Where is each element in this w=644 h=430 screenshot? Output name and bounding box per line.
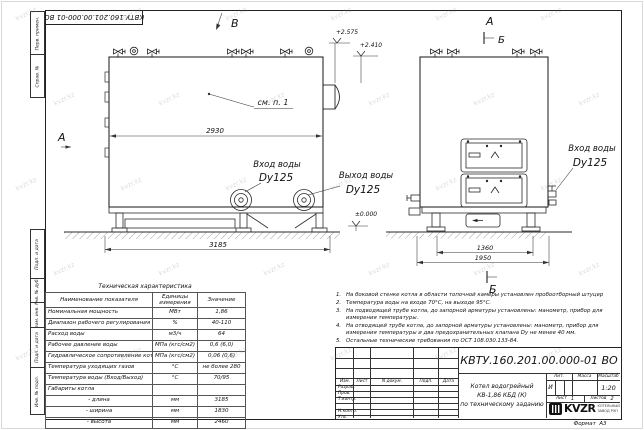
margin-cell: Инв. № дубл. <box>30 278 45 303</box>
margin-label: Подп. и дата <box>35 332 40 363</box>
note-number: 3. <box>336 308 341 315</box>
param-value: не более 280 <box>198 363 246 374</box>
lit-value: И <box>546 380 555 395</box>
rev-col-docnum: N докум. <box>371 380 413 384</box>
param-name: Температура уходящих газов <box>46 363 153 374</box>
param-unit: % <box>153 319 198 330</box>
note-text: Остальные технические требования по ОСТ … <box>346 338 518 344</box>
scale-label: Масштаб <box>597 375 620 379</box>
margin-label: Справ. № <box>35 65 40 87</box>
doc-number-flipped: КВТУ.160.201.00.000-01 ВО <box>44 13 144 21</box>
margin-cell: Подп. и дата <box>30 327 45 368</box>
technical-notes: 1.На боковой стенке котла в области топо… <box>336 292 620 346</box>
param-unit: мм <box>153 396 198 407</box>
title-block: Изм. Лист N докум. Подп. Дата Разраб. Пр… <box>335 347 622 420</box>
margin-label: Инв. № дубл. <box>35 278 40 303</box>
param-name: - высота <box>46 418 153 429</box>
note-item: 3.На подводящей трубе котла, до запорной… <box>336 308 620 322</box>
param-name: Номинальная мощность <box>46 308 153 319</box>
param-value <box>198 385 246 396</box>
table-row: Температура воды (Вход/Выход)°С70/95 <box>46 374 246 385</box>
drawing-title: Котел водогрейный КВ-1,86 КБД (К) по тех… <box>458 373 546 418</box>
margin-cell: Взам. инв. № <box>30 302 45 328</box>
margin-cell: Справ. № <box>30 54 45 98</box>
role-tkontr: Т.контр. <box>338 398 357 402</box>
table-row: Гидравлическое сопротивление котлаМПа (к… <box>46 352 246 363</box>
table-row: Рабочее давление водыМПа (кгс/см2)0,6 (6… <box>46 341 246 352</box>
mass-label: Масса <box>572 375 597 379</box>
format-label: Формат А3 <box>558 421 622 427</box>
param-value: 2460 <box>198 418 246 429</box>
role-razrab: Разраб. <box>338 386 355 390</box>
param-unit: МВт <box>153 308 198 319</box>
param-unit: мм <box>153 407 198 418</box>
margin-label: Подп. и дата <box>35 239 40 270</box>
note-text: На боковой стенке котла в области топочн… <box>346 292 603 298</box>
table-row: - длинамм3185 <box>46 396 246 407</box>
param-value: 0,6 (6,0) <box>198 341 246 352</box>
param-unit: МПа (кгс/см2) <box>153 341 198 352</box>
note-item: 1.На боковой стенке котла в области топо… <box>336 292 620 299</box>
param-value: 1830 <box>198 407 246 418</box>
title-line: по техническому заданию <box>460 400 543 409</box>
kvzr-logo-icon <box>549 403 562 415</box>
param-value: 1,86 <box>198 308 246 319</box>
logo-sub-line: ЗАВОД РЭП <box>597 409 619 413</box>
param-unit <box>153 385 198 396</box>
param-unit: мм <box>153 418 198 429</box>
margin-cell: Инв. № подл. <box>30 367 45 415</box>
table-row: - ширинамм1830 <box>46 407 246 418</box>
param-name: - ширина <box>46 407 153 418</box>
margin-label: Перв. примен. <box>35 16 40 50</box>
role-prov: Пров. <box>338 392 351 396</box>
note-number: 5. <box>336 338 341 345</box>
left-margin-bottom: Подп. и дата Инв. № дубл. Взам. инв. № П… <box>30 230 45 415</box>
title-line: КВ-1,86 КБД (К) <box>477 391 527 400</box>
margin-cell: Перв. примен. <box>30 11 45 55</box>
param-name: Диапазон рабочего регулирования <box>46 319 153 330</box>
logo-subtitle: КОТЕЛЬНЫЙ ЗАВОД РЭП <box>597 404 619 412</box>
tech-table-title: Техническая характеристика <box>45 283 245 292</box>
param-name: Расход воды <box>46 330 153 341</box>
role-nkontr: Н.контр. <box>338 410 357 414</box>
logo-text: KVZR <box>564 402 595 415</box>
param-value: 3185 <box>198 396 246 407</box>
note-text: Температура воды на входе 70°С, на выход… <box>346 300 491 306</box>
note-item: 5.Остальные технические требования по ОС… <box>336 338 620 345</box>
left-margin-top: Перв. примен. Справ. № <box>30 12 45 98</box>
tech-table-header: Наименование показателя Единицы измерени… <box>46 293 246 308</box>
param-unit: МПа (кгс/см2) <box>153 352 198 363</box>
margin-label: Взам. инв. № <box>35 302 40 328</box>
param-value: 70/95 <box>198 374 246 385</box>
rev-col-data: Дата <box>439 380 458 384</box>
format-word: Формат <box>573 421 595 427</box>
lit-label: Лит. <box>546 375 572 379</box>
col-header: Наименование показателя <box>46 293 153 308</box>
rev-col-izm: Изм. <box>337 380 353 384</box>
doc-number: КВТУ.160.201.00.000-01 ВО <box>458 348 620 373</box>
note-text: На подводящей трубе котла, до запорной а… <box>346 308 603 321</box>
table-row: Габариты котла <box>46 385 246 396</box>
note-number: 1. <box>336 292 341 299</box>
table-row: Диапазон рабочего регулирования%40-110 <box>46 319 246 330</box>
param-unit: м3/ч <box>153 330 198 341</box>
rev-col-list: Лист <box>354 380 370 384</box>
margin-label: Инв. № подл. <box>35 375 40 406</box>
param-name: Габариты котла <box>46 385 153 396</box>
param-name: Рабочее давление воды <box>46 341 153 352</box>
note-text: На отводящей трубе котла, до запорной ар… <box>346 323 598 336</box>
param-unit: °С <box>153 363 198 374</box>
scale-value: 1:20 <box>597 380 620 395</box>
param-unit: °С <box>153 374 198 385</box>
note-item: 4.На отводящей трубе котла, до запорной … <box>336 323 620 337</box>
note-item: 2.Температура воды на входе 70°С, на вых… <box>336 300 620 307</box>
param-value: 0,06 (0,6) <box>198 352 246 363</box>
title-line: Котел водогрейный <box>471 382 534 391</box>
margin-cell: Подп. и дата <box>30 229 45 279</box>
rev-col-podp: Подп. <box>414 380 438 384</box>
table-row: Температура уходящих газов°Сне более 280 <box>46 363 246 374</box>
param-value: 64 <box>198 330 246 341</box>
tech-table: Наименование показателя Единицы измерени… <box>45 292 246 429</box>
table-row: Расход водым3/ч64 <box>46 330 246 341</box>
format-value: А3 <box>599 421 606 427</box>
col-header: Единицы измерения <box>153 293 198 308</box>
param-name: Температура воды (Вход/Выход) <box>46 374 153 385</box>
note-number: 2. <box>336 300 341 307</box>
param-name: - длина <box>46 396 153 407</box>
param-name: Гидравлическое сопротивление котла <box>46 352 153 363</box>
col-header: Значение <box>198 293 246 308</box>
note-number: 4. <box>336 323 341 330</box>
role-utv: Утв. <box>338 416 347 420</box>
doc-number-flipped-box: КВТУ.160.201.00.000-01 ВО <box>45 10 143 25</box>
drawing-sheet: В А А Б Б см. п. 1 2930 3185 1360 1950 +… <box>0 0 644 430</box>
param-value: 40-110 <box>198 319 246 330</box>
table-row: - высотамм2460 <box>46 418 246 429</box>
tech-characteristics: Техническая характеристика Наименование … <box>45 283 245 429</box>
manufacturer-logo: KVZR КОТЕЛЬНЫЙ ЗАВОД РЭП <box>546 399 620 418</box>
table-row: Номинальная мощностьМВт1,86 <box>46 308 246 319</box>
